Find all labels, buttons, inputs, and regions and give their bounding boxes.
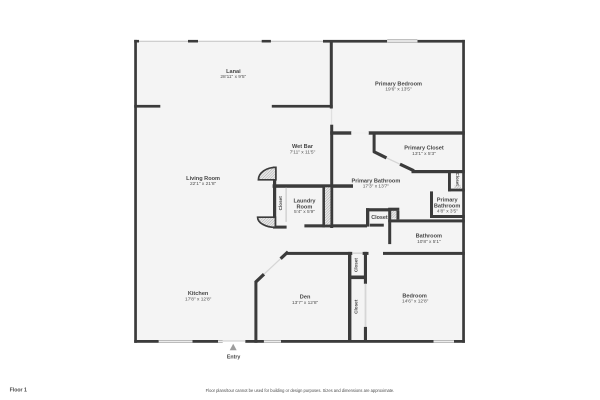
svg-text:7'11" x 11'5": 7'11" x 11'5" bbox=[290, 149, 316, 155]
svg-text:10'8" x 5'1": 10'8" x 5'1" bbox=[417, 239, 441, 245]
svg-text:Closet: Closet bbox=[354, 258, 359, 273]
svg-text:Bathroom: Bathroom bbox=[416, 234, 442, 240]
svg-text:17'3" x 13'7": 17'3" x 13'7" bbox=[363, 184, 390, 190]
svg-text:Kitchen: Kitchen bbox=[188, 291, 209, 297]
svg-text:Floor 1: Floor 1 bbox=[10, 388, 27, 394]
svg-text:Floor plans/tour cannot be use: Floor plans/tour cannot be used for buil… bbox=[206, 388, 395, 393]
svg-text:Primary Bedroom: Primary Bedroom bbox=[375, 82, 422, 88]
svg-text:14'6" x 12'8": 14'6" x 12'8" bbox=[402, 299, 429, 305]
svg-text:Den: Den bbox=[300, 294, 311, 300]
svg-text:Bedroom: Bedroom bbox=[402, 294, 427, 300]
svg-text:22'1" x 21'8": 22'1" x 21'8" bbox=[190, 181, 217, 187]
svg-text:19'6" x 13'5": 19'6" x 13'5" bbox=[385, 87, 412, 93]
svg-text:4'8" x 3'5": 4'8" x 3'5" bbox=[437, 208, 458, 214]
svg-text:Closet: Closet bbox=[371, 215, 388, 221]
svg-text:28'11" x 9'5": 28'11" x 9'5" bbox=[220, 74, 246, 80]
svg-text:Closet: Closet bbox=[455, 173, 460, 186]
svg-text:Closet: Closet bbox=[354, 299, 359, 314]
svg-text:13'1" x 5'3": 13'1" x 5'3" bbox=[412, 151, 436, 157]
svg-text:Entry: Entry bbox=[227, 354, 241, 360]
svg-text:Closet: Closet bbox=[278, 196, 283, 211]
svg-text:Lanai: Lanai bbox=[226, 69, 241, 75]
svg-text:13'7" x 12'8": 13'7" x 12'8" bbox=[292, 300, 319, 306]
svg-text:Wet Bar: Wet Bar bbox=[292, 144, 314, 150]
svg-text:5'4" x 5'9": 5'4" x 5'9" bbox=[294, 209, 315, 215]
svg-text:17'8" x 12'8": 17'8" x 12'8" bbox=[185, 296, 212, 302]
svg-text:Primary Closet: Primary Closet bbox=[404, 146, 444, 152]
svg-text:Primary Bathroom: Primary Bathroom bbox=[351, 178, 400, 184]
svg-text:Primary: Primary bbox=[437, 197, 459, 203]
